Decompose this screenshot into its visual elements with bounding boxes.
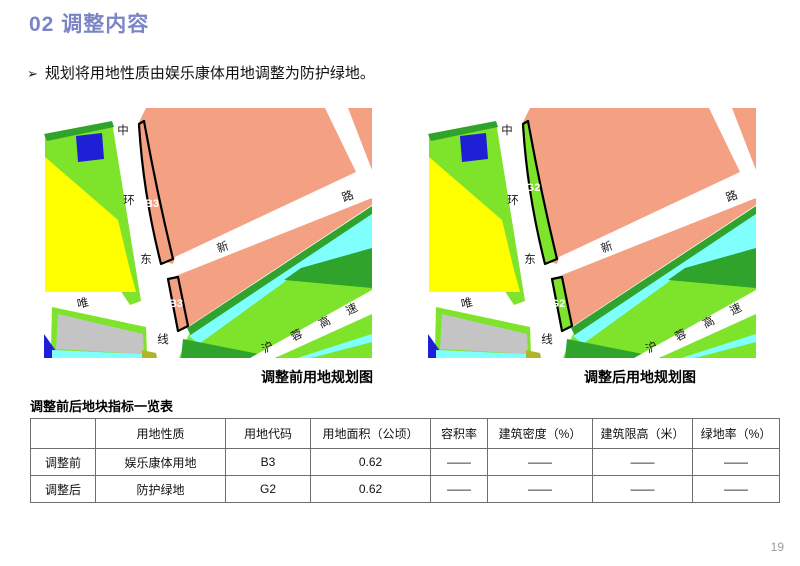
- road-label: 环: [123, 195, 135, 207]
- parcel-code-label: G2: [551, 298, 566, 310]
- table-header-row: 用地性质 用地代码 用地面积（公顷） 容积率 建筑密度（%） 建筑限高（米） 绿…: [31, 419, 780, 449]
- bullet-text: 规划将用地性质由娱乐康体用地调整为防护绿地。: [45, 65, 375, 82]
- table-cell: ——: [693, 449, 780, 476]
- bullet-line: ➢规划将用地性质由娱乐康体用地调整为防护绿地。: [27, 62, 375, 83]
- table-cell: B3: [226, 449, 311, 476]
- header-cell: [31, 419, 96, 449]
- table-cell: 娱乐康体用地: [96, 449, 226, 476]
- table-cell: ——: [593, 476, 693, 503]
- header-cell: 容积率: [431, 419, 488, 449]
- header-cell: 用地面积（公顷）: [311, 419, 431, 449]
- road-label: 环: [507, 195, 519, 207]
- road-label: 东: [140, 253, 152, 266]
- header-cell: 建筑限高（米）: [593, 419, 693, 449]
- header-cell: 用地性质: [96, 419, 226, 449]
- table-row: 调整后 防护绿地 G2 0.62 —— —— —— ——: [31, 476, 780, 503]
- road-label: 东: [524, 253, 536, 266]
- road-label: 中: [117, 124, 129, 137]
- table-cell: 0.62: [311, 476, 431, 503]
- road-label: 中: [501, 124, 513, 137]
- table-row: 调整前 娱乐康体用地 B3 0.62 —— —— —— ——: [31, 449, 780, 476]
- road-label: 线: [541, 332, 553, 346]
- table-cell: ——: [431, 449, 488, 476]
- arrow-bullet-icon: ➢: [27, 66, 38, 81]
- page-number: 19: [771, 540, 784, 554]
- header-cell: 绿地率（%）: [693, 419, 780, 449]
- parcel-code-label: G2: [526, 182, 541, 194]
- header-cell: 建筑密度（%）: [488, 419, 593, 449]
- table-cell: ——: [488, 476, 593, 503]
- table-cell: 0.62: [311, 449, 431, 476]
- slide: 02 调整内容 ➢规划将用地性质由娱乐康体用地调整为防护绿地。 中 环 东 线 …: [0, 0, 800, 566]
- table-cell: 防护绿地: [96, 476, 226, 503]
- table-cell: ——: [488, 449, 593, 476]
- road-label: 线: [157, 332, 169, 346]
- parcel-code-label: B3: [169, 298, 183, 310]
- indicators-table: 用地性质 用地代码 用地面积（公顷） 容积率 建筑密度（%） 建筑限高（米） 绿…: [30, 418, 780, 503]
- map-caption-before: 调整前用地规划图: [39, 367, 373, 387]
- table-cell: 调整后: [31, 476, 96, 503]
- table-cell: ——: [693, 476, 780, 503]
- table-cell: 调整前: [31, 449, 96, 476]
- parcel-code-label: B3: [145, 198, 159, 210]
- land-use-map-after: 中 环 东 线 新 路 唯 沪 蓉 高 速 G2 G2: [423, 108, 756, 358]
- page-title: 02 调整内容: [29, 8, 149, 38]
- table-cell: ——: [593, 449, 693, 476]
- land-use-map-before: 中 环 东 线 新 路 唯 沪 蓉 高 速 B3 B3: [39, 108, 372, 358]
- table-cell: G2: [226, 476, 311, 503]
- header-cell: 用地代码: [226, 419, 311, 449]
- table-cell: ——: [431, 476, 488, 503]
- map-caption-after: 调整后用地规划图: [423, 367, 696, 387]
- table-title: 调整前后地块指标一览表: [30, 396, 173, 415]
